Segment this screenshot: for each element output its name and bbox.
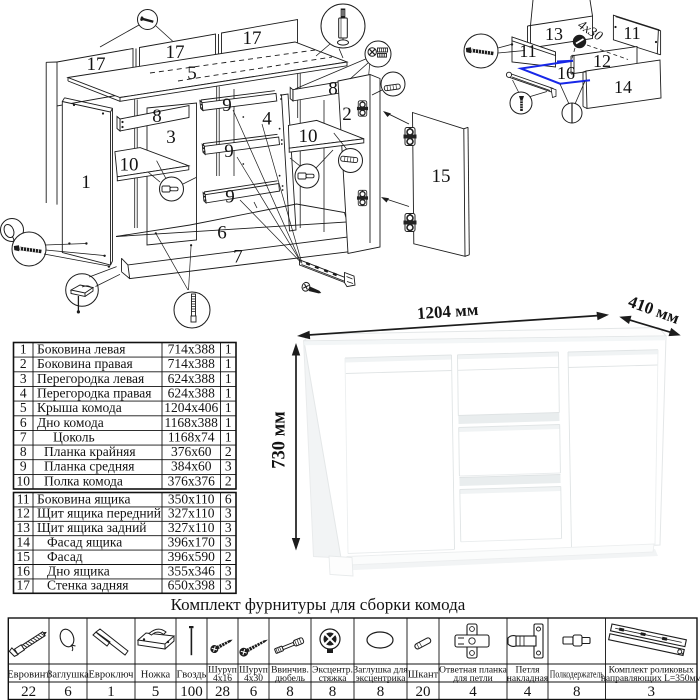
svg-text:Комплект фурнитуры для сборки: Комплект фурнитуры для сборки комода (171, 595, 466, 614)
svg-text:8: 8 (377, 684, 385, 700)
svg-text:накладная: накладная (507, 674, 549, 684)
svg-text:9: 9 (225, 187, 235, 208)
svg-text:4x16: 4x16 (213, 674, 232, 684)
svg-text:3: 3 (225, 535, 232, 550)
svg-text:20: 20 (416, 684, 431, 700)
svg-text:6: 6 (20, 415, 27, 430)
svg-text:13: 13 (16, 520, 30, 535)
svg-text:дюбель: дюбель (275, 673, 306, 684)
svg-text:1: 1 (225, 400, 232, 415)
svg-text:714x388: 714x388 (168, 356, 216, 371)
svg-text:11: 11 (623, 23, 640, 43)
svg-text:5: 5 (152, 684, 160, 700)
svg-text:8: 8 (20, 444, 27, 459)
svg-text:9: 9 (20, 459, 27, 474)
svg-text:4: 4 (524, 684, 532, 700)
svg-text:6: 6 (250, 684, 258, 700)
svg-text:3: 3 (225, 520, 232, 535)
svg-text:Боковина левая: Боковина левая (37, 342, 125, 357)
svg-text:7: 7 (233, 247, 243, 268)
svg-text:4: 4 (469, 684, 477, 700)
svg-text:376x60: 376x60 (171, 444, 212, 459)
svg-text:Заглушка: Заглушка (47, 670, 89, 681)
svg-text:Дно комода: Дно комода (37, 415, 104, 430)
svg-text:8: 8 (286, 684, 294, 700)
svg-text:8: 8 (328, 79, 338, 100)
svg-text:1: 1 (225, 342, 232, 357)
svg-text:16: 16 (16, 563, 30, 578)
svg-text:8: 8 (573, 684, 581, 700)
svg-text:355x346: 355x346 (168, 563, 216, 578)
svg-text:2: 2 (225, 549, 232, 564)
svg-text:1: 1 (225, 429, 232, 444)
svg-text:10: 10 (120, 155, 139, 176)
svg-text:396x590: 396x590 (168, 549, 216, 564)
svg-text:11: 11 (17, 491, 30, 506)
svg-text:Перегородка левая: Перегородка левая (37, 371, 144, 386)
svg-text:3: 3 (225, 506, 232, 521)
svg-text:2: 2 (225, 444, 232, 459)
svg-text:350x110: 350x110 (168, 491, 215, 506)
svg-text:Шкант: Шкант (408, 670, 439, 681)
svg-text:28: 28 (215, 684, 230, 700)
svg-text:1168x74: 1168x74 (168, 429, 215, 444)
svg-text:9: 9 (224, 141, 234, 162)
svg-text:5: 5 (20, 400, 27, 415)
svg-text:624x388: 624x388 (168, 371, 216, 386)
svg-text:327x110: 327x110 (168, 506, 215, 521)
svg-text:2: 2 (342, 104, 352, 125)
svg-text:Полкодержатель: Полкодержатель (550, 670, 604, 681)
svg-text:3: 3 (20, 371, 27, 386)
svg-text:2: 2 (20, 356, 27, 371)
svg-text:650x398: 650x398 (168, 578, 216, 593)
svg-text:для петли: для петли (453, 674, 492, 684)
svg-text:5: 5 (187, 63, 197, 84)
svg-text:стяжка: стяжка (319, 674, 348, 684)
svg-text:Щит ящика передний: Щит ящика передний (37, 506, 161, 521)
svg-text:Гвоздь: Гвоздь (177, 670, 207, 681)
svg-text:4: 4 (262, 109, 272, 130)
svg-text:22: 22 (21, 684, 36, 700)
svg-text:8: 8 (152, 106, 162, 127)
svg-text:12: 12 (16, 506, 30, 521)
svg-text:Планка средняя: Планка средняя (44, 459, 135, 474)
svg-text:Фасад: Фасад (47, 549, 83, 564)
svg-text:8: 8 (329, 684, 337, 700)
svg-text:2: 2 (225, 473, 232, 488)
svg-text:Евровинт: Евровинт (7, 670, 50, 681)
svg-text:4x30: 4x30 (244, 674, 263, 684)
svg-text:730 мм: 730 мм (270, 411, 290, 469)
svg-text:13: 13 (545, 24, 563, 44)
svg-text:Щит ящика задний: Щит ящика задний (37, 520, 147, 535)
svg-text:6: 6 (225, 491, 232, 506)
svg-text:9: 9 (222, 95, 232, 116)
svg-text:1168x388: 1168x388 (164, 415, 218, 430)
svg-text:14: 14 (614, 77, 632, 97)
svg-text:1: 1 (225, 371, 232, 386)
svg-text:3: 3 (166, 127, 176, 148)
svg-text:4: 4 (20, 386, 27, 401)
svg-text:10: 10 (299, 126, 318, 147)
svg-text:эксцентрика: эксцентрика (356, 674, 407, 684)
svg-text:1: 1 (225, 415, 232, 430)
svg-text:Ножка: Ножка (141, 670, 171, 681)
svg-text:396x170: 396x170 (168, 535, 216, 550)
svg-text:направляющих L=350мм: направляющих L=350мм (601, 674, 700, 684)
svg-text:Полка комода: Полка комода (44, 473, 123, 488)
svg-text:Евроключ: Евроключ (89, 670, 135, 681)
svg-text:1204x406: 1204x406 (164, 400, 218, 415)
svg-text:Цоколь: Цоколь (53, 429, 95, 444)
svg-text:100: 100 (180, 684, 203, 700)
svg-text:714x388: 714x388 (168, 342, 216, 357)
svg-text:3: 3 (225, 578, 232, 593)
svg-text:384x60: 384x60 (171, 459, 212, 474)
svg-text:3: 3 (647, 684, 655, 700)
svg-text:624x388: 624x388 (168, 386, 216, 401)
svg-text:10: 10 (16, 473, 30, 488)
svg-text:1: 1 (107, 684, 115, 700)
svg-text:327x110: 327x110 (168, 520, 215, 535)
svg-text:1: 1 (225, 356, 232, 371)
svg-text:Перегородка правая: Перегородка правая (37, 386, 152, 401)
svg-text:3: 3 (225, 563, 232, 578)
svg-text:16: 16 (557, 63, 575, 83)
svg-text:14: 14 (16, 535, 30, 550)
svg-text:15: 15 (16, 549, 30, 564)
svg-text:Планка крайняя: Планка крайняя (44, 444, 136, 459)
svg-text:17: 17 (243, 28, 262, 49)
svg-text:1: 1 (81, 172, 91, 193)
svg-text:6: 6 (217, 223, 227, 244)
svg-text:15: 15 (432, 166, 451, 187)
svg-text:1: 1 (20, 342, 27, 357)
svg-text:Дно ящика: Дно ящика (47, 563, 110, 578)
svg-text:Крыша комода: Крыша комода (37, 400, 122, 415)
svg-text:17: 17 (16, 578, 30, 593)
svg-text:3: 3 (225, 459, 232, 474)
svg-text:Стенка задняя: Стенка задняя (47, 578, 129, 593)
svg-text:Боковина ящика: Боковина ящика (37, 491, 131, 506)
svg-text:7: 7 (20, 429, 27, 444)
svg-text:Фасад ящика: Фасад ящика (47, 535, 122, 550)
svg-text:Боковина правая: Боковина правая (37, 356, 133, 371)
svg-text:6: 6 (64, 684, 72, 700)
svg-text:376x376: 376x376 (168, 473, 216, 488)
svg-text:1: 1 (225, 386, 232, 401)
